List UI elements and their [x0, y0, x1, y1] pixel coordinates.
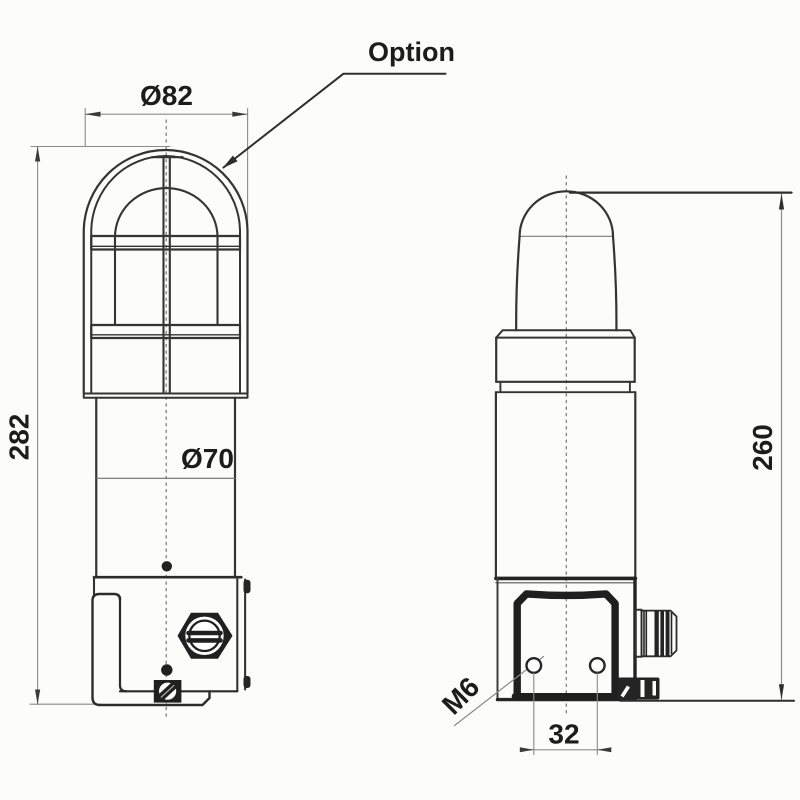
svg-text:Ø70: Ø70: [181, 443, 234, 474]
svg-text:32: 32: [548, 719, 579, 750]
svg-text:Ø82: Ø82: [140, 80, 193, 111]
svg-text:282: 282: [4, 414, 35, 461]
svg-text:Option: Option: [368, 37, 455, 67]
svg-text:260: 260: [747, 424, 778, 471]
